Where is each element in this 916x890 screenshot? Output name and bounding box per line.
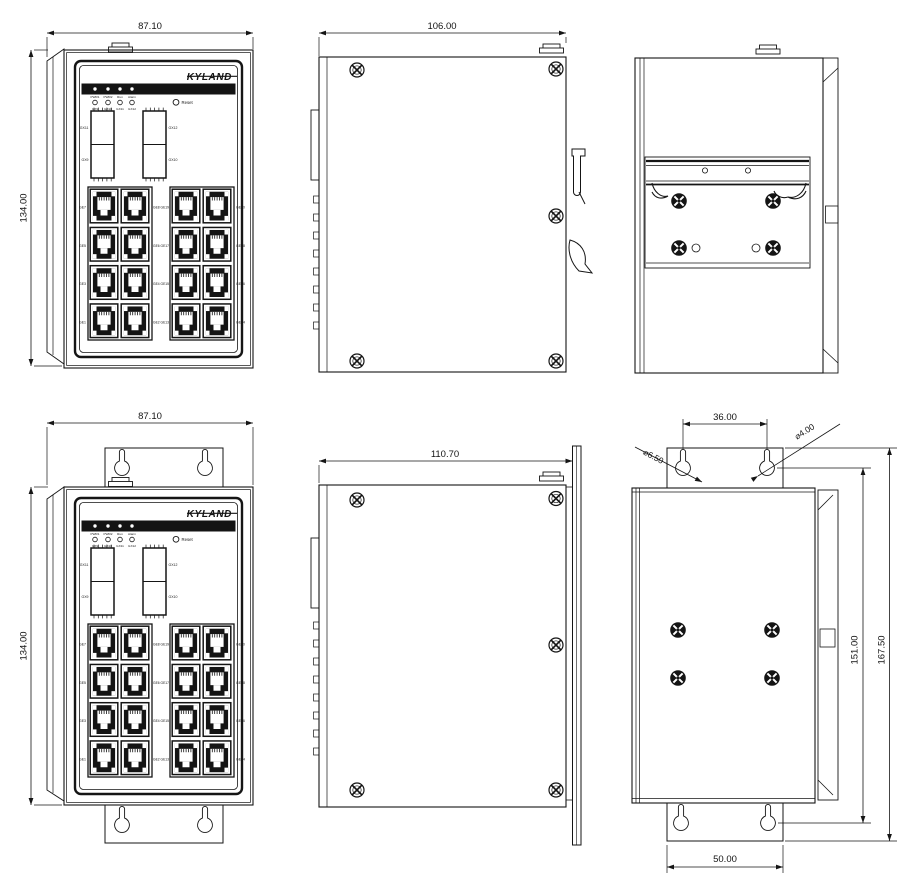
rj45-port-icon [90,664,118,698]
vent-fin [314,214,320,221]
dim-arrow [29,798,34,805]
led-label: PWR2 [104,532,113,536]
plate-hole [752,244,760,252]
ground-terminal [109,478,133,487]
led-label: Run [117,532,123,536]
dimension-value: 151.00 [850,635,861,664]
vent-fin [314,640,320,647]
keyhole-slot [115,806,130,832]
dimension: 106.00 [319,21,566,35]
dim-arrow [29,359,34,366]
flange-notch [820,629,835,647]
rj45-port-icon [172,703,200,737]
vent-fin [314,232,320,239]
vent-fin [314,286,320,293]
front-panel: KYLANDPWR1GX9PWR2GX10RunGX11AlarmGX12Res… [64,50,253,368]
keyhole-slot [198,806,213,832]
port-label: GE1 [79,757,86,761]
vent-fin [314,322,320,329]
port-label: GE2 GE13 [153,320,169,324]
chamfer [818,495,833,510]
dimension-value: 87.10 [138,21,162,32]
rj45-port-icon [90,227,118,261]
vent-fin [314,676,320,683]
dim-arrow [29,50,34,57]
dim-arrow [751,474,759,482]
led-bar [82,521,236,532]
rj45-port-icon [203,266,231,300]
keyhole-slot [115,449,130,475]
side-view-wall-mount: 110.70 [311,446,581,845]
led-indicator [106,537,111,542]
chamfer [823,349,838,363]
dim-arrow [47,31,54,36]
port-label: GE20 [236,643,245,647]
led-label: Run [117,95,123,99]
drawing-line [579,192,585,204]
screw-icon [350,354,364,368]
enclosure-side [319,485,566,807]
reset-button-icon [173,99,179,105]
reset-label: Reset [182,100,194,105]
screw-icon [350,63,364,77]
dim-arrow [319,31,326,36]
led-indicator [118,537,123,542]
dim-arrow [566,459,573,464]
dimension-value: 134.00 [19,631,30,660]
rj45-port-icon [121,266,149,300]
led-label: Alarm [128,95,137,99]
din-rail-edge [47,49,64,364]
port-label: GE5 [79,244,86,248]
rj45-port-icon [90,703,118,737]
sfp-port-label: GX9 [81,595,88,599]
hole-diameter-label: ⌀6.50 [641,447,665,466]
dimension-value: 134.00 [19,193,30,222]
hole-diameter-label: ⌀4.00 [793,421,817,441]
reset-button-icon [173,536,179,542]
dim-arrow [559,31,566,36]
dimension-value: 110.70 [431,449,459,460]
port-label: GE4 GE15 [153,719,169,723]
led-label: Alarm [128,532,137,536]
screw-icon [766,194,781,209]
mount-plate [645,157,810,268]
front-view-din-rail: KYLANDPWR1GX9PWR2GX10RunGX11AlarmGX12Res… [19,21,254,368]
rj45-port-icon [172,266,200,300]
dimension-value: 36.00 [713,412,737,423]
keyhole-slot [198,449,213,475]
rear-view-din-rail [635,45,838,373]
flange-notch [826,206,839,223]
port-label: GE2 GE13 [153,757,169,761]
dim-arrow [246,31,253,36]
screw-icon [672,194,687,209]
ground-terminal [109,43,133,52]
dimension: 134.00 [19,487,34,805]
port-label: GE5 [79,681,86,685]
port-label: GE20 [236,206,245,210]
side-view-din-rail: 106.00 [311,21,592,372]
screw-icon [672,241,687,256]
led-indicator [106,100,111,105]
vent-fin [314,712,320,719]
rj45-port-icon [203,703,231,737]
screw-icon [549,62,563,76]
rail-hole [745,168,750,173]
rj45-port-icon [90,189,118,223]
enclosure-rear [632,488,815,803]
dim-arrow [667,865,674,870]
drawing-sheet: KYLANDPWR1GX9PWR2GX10RunGX11AlarmGX12Res… [0,0,916,890]
port-label: GE6 GE17 [153,681,169,685]
drawing-shape [540,476,564,481]
technical-drawing-canvas: KYLANDPWR1GX9PWR2GX10RunGX11AlarmGX12Res… [0,0,916,890]
port-label: GE14 [236,320,245,324]
led-bar [82,84,236,95]
rj45-port-icon [121,741,149,775]
sfp-port-label: GX9 [81,158,88,162]
vent-fin [314,748,320,755]
drawing-shape [569,240,592,273]
front-panel: KYLANDPWR1GX9PWR2GX10RunGX11AlarmGX12Res… [64,487,253,805]
sfp-port-label: GX10 [169,158,178,162]
rj45-port-icon [203,626,231,660]
port-label: GE16 [236,719,245,723]
port-label: GE14 [236,757,245,761]
front-view-wall-mount: KYLANDPWR1GX9PWR2GX10RunGX11AlarmGX12Res… [19,411,254,843]
drawing-shape [109,482,133,487]
status-led [130,524,133,527]
din-clip-icon [569,149,592,273]
screw-icon [671,623,686,638]
dimension-value: 87.10 [138,411,162,422]
rear-view-wall-mount: 36.00⌀6.50⌀4.00151.00167.5050.00 [632,412,897,873]
chamfer [818,780,833,795]
rj45-port-icon [90,266,118,300]
rj45-port-icon [90,304,118,338]
led-port-label: GX11 [116,107,124,111]
dim-arrow [683,422,690,427]
port-label: GE16 [236,282,245,286]
sfp-port-label: GX12 [169,563,178,567]
port-label: GE4 GE15 [153,282,169,286]
screw-icon [549,209,563,223]
dim-arrow [246,421,253,426]
status-led [118,524,121,527]
port-label: GE1 [79,320,86,324]
side-connector [311,538,319,608]
kyland-logo: KYLAND [187,72,232,83]
dimension: 87.10 [47,21,253,35]
rj45-port-icon [172,741,200,775]
rail-hole [702,168,707,173]
vent-fin [314,268,320,275]
status-led [93,524,96,527]
status-led [106,87,109,90]
keyhole-slot [760,449,775,475]
led-indicator [93,100,98,105]
dimension: 134.00 [19,50,34,366]
dim-arrow [760,422,767,427]
dim-arrow [861,468,866,475]
screw-icon [549,492,563,506]
screw-icon [350,783,364,797]
led-label: PWR1 [91,95,100,99]
vent-fin [314,622,320,629]
rj45-port-icon [90,626,118,660]
led-port-label: GX12 [128,544,136,548]
rj45-port-icon [172,664,200,698]
dimension: 151.00 [850,468,866,823]
sfp-port-label: GX10 [169,595,178,599]
screw-icon [766,241,781,256]
screw-icon [350,493,364,507]
status-led [130,87,133,90]
vent-fin [314,196,320,203]
led-indicator [130,100,135,105]
vent-fin [314,694,320,701]
screw-icon [549,783,563,797]
port-label: GE7 [79,206,86,210]
rj45-port-icon [172,304,200,338]
rj45-port-icon [203,189,231,223]
leader-line: ⌀6.50 [635,447,703,484]
rj45-port-icon [203,664,231,698]
rj45-port-icon [172,626,200,660]
screw-icon [549,638,563,652]
port-label: GE3 [79,719,86,723]
rj45-port-icon [121,626,149,660]
reset-label: Reset [182,537,194,542]
port-label: GE7 [79,643,86,647]
rj45-port-icon [121,189,149,223]
dim-arrow [695,477,703,485]
keyhole-slot [676,449,691,475]
rj45-port-icon [121,227,149,261]
dim-arrow [887,834,892,841]
led-label: PWR2 [104,95,113,99]
rj45-port-icon [172,227,200,261]
drawing-shape [572,149,585,196]
port-label: GE6 GE17 [153,244,169,248]
rj45-port-icon [203,227,231,261]
vent-fin [314,730,320,737]
screw-icon [765,623,780,638]
side-connector [311,110,319,180]
port-label: GE18 [236,681,245,685]
led-indicator [130,537,135,542]
chamfer [823,68,838,82]
screw-icon [765,671,780,686]
screw-icon [671,671,686,686]
rj45-port-icon [90,741,118,775]
drawing-shape [756,49,780,54]
vent-fin [314,250,320,257]
dimension: 50.00 [667,854,783,869]
rj45-port-icon [172,189,200,223]
dim-arrow [887,448,892,455]
dimension: 87.10 [47,411,253,425]
dim-arrow [29,487,34,494]
rj45-port-icon [121,304,149,338]
dim-arrow [319,459,326,464]
sfp-port-label: GX11 [80,563,89,567]
dimension: 167.50 [877,448,892,841]
led-indicator [93,537,98,542]
dimension-value: 167.50 [877,635,888,664]
led-indicator [118,100,123,105]
sfp-port-label: GX12 [169,126,178,130]
dimension: 110.70 [319,449,573,463]
status-led [93,87,96,90]
dim-arrow [776,865,783,870]
keyhole-slot [761,804,776,830]
port-label: GE8 GE19 [153,206,169,210]
ground-terminal [540,472,564,481]
enclosure-rear [635,58,823,373]
sfp-port-label: GX11 [80,126,89,130]
led-port-label: GX12 [128,107,136,111]
led-port-label: GX11 [116,544,124,548]
port-label: GE18 [236,244,245,248]
plate-hole [692,244,700,252]
dimension-value: 50.00 [713,854,737,865]
screw-icon [549,354,563,368]
plate-edge [47,487,64,801]
rj45-port-icon [203,304,231,338]
keyhole-slot [674,804,689,830]
vent-fin [314,304,320,311]
dimension-value: 106.00 [427,21,456,32]
rj45-port-icon [121,703,149,737]
rj45-port-icon [203,741,231,775]
dim-arrow [861,816,866,823]
status-led [106,524,109,527]
enclosure-side [319,57,566,372]
dim-arrow [47,421,54,426]
drawing-shape [540,48,564,53]
ground-terminal [540,44,564,53]
rj45-port-icon [121,664,149,698]
kyland-logo: KYLAND [187,509,232,520]
port-label: GE3 [79,282,86,286]
vent-fin [314,658,320,665]
port-label: GE8 GE19 [153,643,169,647]
ground-terminal [756,45,780,54]
led-label: PWR1 [91,532,100,536]
status-led [118,87,121,90]
dimension: 36.00 [683,412,767,426]
